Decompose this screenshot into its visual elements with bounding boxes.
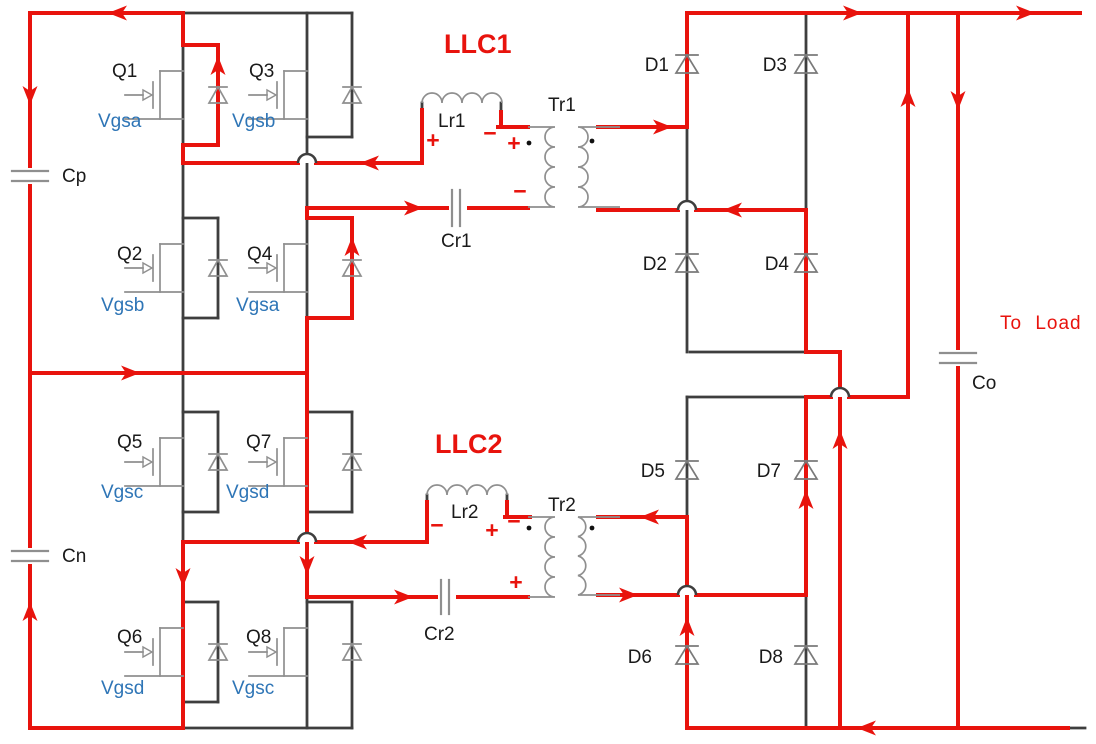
wire-crossover-hop [678,201,696,210]
mosfet-gate-arrow-icon [267,90,276,100]
labels: Q1VgsaQ2VgsbQ3VgsbQ4VgsaQ5VgscQ6VgsdQ7Vg… [62,29,1082,699]
label-q6: Q6 [117,627,142,648]
llc-converter-schematic: Q1VgsaQ2VgsbQ3VgsbQ4VgsaQ5VgscQ6VgsdQ7Vg… [0,0,1096,744]
label-q8: Q8 [246,627,271,648]
label-tr1: Tr1 [548,95,576,116]
label-q1: Q1 [112,61,137,82]
polarity-mark: − [507,508,520,534]
gate-label-q5: Vgsc [101,482,143,503]
current-arrows [23,6,1036,736]
gate-label-q8: Vgsc [232,678,274,699]
mosfet-gate-arrow-icon [143,90,152,100]
current-path-overlay [30,13,1080,728]
gate-label-q4: Vgsa [236,295,280,316]
label-cr2: Cr2 [424,624,455,645]
mosfet-gate-arrow-icon [143,647,152,657]
polarity-mark: − [513,178,526,204]
label-d4: D4 [765,254,790,275]
label-lr2: Lr2 [451,502,478,523]
polarity-mark: + [426,127,439,153]
gate-label-q2: Vgsb [101,295,144,316]
label-d3: D3 [763,55,787,76]
wire-crossover-hop [298,533,316,542]
label-d6: D6 [628,647,652,668]
transformer-tr1-secondary [578,127,620,207]
label-q4: Q4 [247,244,273,265]
label-d1: D1 [645,55,669,76]
wire-crossover-hop [298,154,316,163]
transformer-tr2-primary [528,517,555,597]
label-co: Co [972,373,996,394]
mosfet-gate-arrow-icon [267,647,276,657]
transformer-tr2-secondary [578,517,620,595]
label-cp: Cp [62,166,86,187]
label-q5: Q5 [117,432,142,453]
label-llc2: LLC2 [435,429,503,459]
label-d7: D7 [757,461,781,482]
mosfet-gate-arrow-icon [267,457,276,467]
label-q2: Q2 [117,244,142,265]
label-to-load: To Load [1000,313,1082,334]
winding-dot-icon [590,526,595,531]
label-cn: Cn [62,546,86,567]
polarity-mark: − [430,512,443,538]
gate-label-q1: Vgsa [98,111,142,132]
mosfet-gate-arrow-icon [143,263,152,273]
base-wires [30,13,1085,728]
label-q7: Q7 [246,432,271,453]
polarity-mark: + [485,517,498,543]
label-d2: D2 [643,254,667,275]
mosfet-gate-arrow-icon [143,457,152,467]
gate-label-q6: Vgsd [101,678,144,699]
winding-dot-icon [527,141,532,146]
circuit-diagram-canvas: Q1VgsaQ2VgsbQ3VgsbQ4VgsaQ5VgscQ6VgsdQ7Vg… [0,0,1096,744]
winding-dot-icon [527,526,532,531]
inductor-lr1 [422,93,502,103]
polarity-mark: + [507,130,520,156]
wire-crossover-hop [678,586,696,595]
label-tr2: Tr2 [548,495,576,516]
label-llc1: LLC1 [444,29,512,59]
label-cr1: Cr1 [441,231,472,252]
label-lr1: Lr1 [438,111,465,132]
gate-label-q3: Vgsb [232,111,275,132]
label-d8: D8 [759,647,783,668]
wire-crossover-hop [831,388,849,397]
label-d5: D5 [641,461,665,482]
devices [12,55,976,676]
polarity-mark: − [483,120,496,146]
inductor-lr2 [427,485,507,495]
gate-label-q7: Vgsd [226,482,269,503]
polarity-mark: + [509,569,522,595]
crossover-hops [298,154,849,595]
transformer-tr1-primary [528,127,555,207]
winding-dot-icon [590,139,595,144]
label-q3: Q3 [249,61,274,82]
